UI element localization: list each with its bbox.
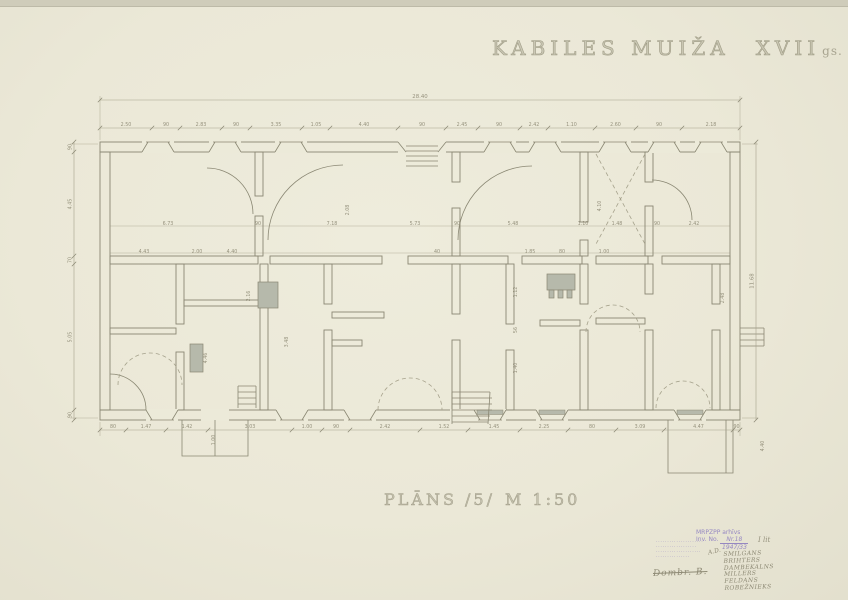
svg-text:1.48: 1.48 <box>612 221 623 227</box>
svg-text:5.05: 5.05 <box>68 332 74 343</box>
inventory-number: Nr.18 <box>720 536 748 544</box>
svg-text:2.00: 2.00 <box>192 249 203 255</box>
svg-text:3.35: 3.35 <box>271 122 282 128</box>
svg-text:1.52: 1.52 <box>439 424 450 430</box>
svg-text:1.10: 1.10 <box>566 122 577 128</box>
svg-text:3.48: 3.48 <box>284 337 290 348</box>
svg-text:2.42: 2.42 <box>380 424 391 430</box>
svg-text:2.60: 2.60 <box>610 122 621 128</box>
svg-text:90: 90 <box>68 144 74 150</box>
svg-text:7.18: 7.18 <box>327 221 338 227</box>
list-line: ··············· <box>656 554 704 559</box>
svg-text:1.42: 1.42 <box>182 424 193 430</box>
svg-text:1.12: 1.12 <box>513 287 519 298</box>
svg-text:3.03: 3.03 <box>245 424 256 430</box>
svg-text:4.45: 4.45 <box>68 199 74 210</box>
title-main: KABILES MUIŽA <box>492 36 730 60</box>
svg-text:4.40: 4.40 <box>359 122 370 128</box>
drawing-sheet: 28.402.50902.83903.351.054.40902.45902.4… <box>0 0 848 600</box>
svg-text:1.45: 1.45 <box>489 424 500 430</box>
svg-text:1.85: 1.85 <box>525 249 536 255</box>
svg-text:56: 56 <box>513 327 519 333</box>
svg-text:2.45: 2.45 <box>457 122 468 128</box>
svg-text:1.10: 1.10 <box>578 221 589 227</box>
svg-text:2.42: 2.42 <box>689 221 700 227</box>
floor-plan-drawing: 28.402.50902.83903.351.054.40902.45902.4… <box>0 0 848 600</box>
plan-scale: M 1:50 <box>505 490 580 509</box>
svg-text:2.48: 2.48 <box>720 293 726 304</box>
svg-text:2.50: 2.50 <box>121 122 132 128</box>
stairs-doors-group <box>110 142 764 473</box>
institution-stamp: ········································… <box>656 539 704 559</box>
svg-text:5.73: 5.73 <box>410 221 421 227</box>
svg-text:4.40: 4.40 <box>760 441 766 452</box>
svg-text:90: 90 <box>733 424 739 430</box>
svg-text:1.05: 1.05 <box>311 122 322 128</box>
svg-text:90: 90 <box>333 424 339 430</box>
svg-text:1.47: 1.47 <box>141 424 152 430</box>
svg-text:90: 90 <box>233 122 239 128</box>
svg-text:90: 90 <box>496 122 502 128</box>
svg-text:2.42: 2.42 <box>529 122 540 128</box>
svg-text:2.25: 2.25 <box>539 424 550 430</box>
svg-text:2.18: 2.18 <box>706 122 717 128</box>
svg-text:90: 90 <box>454 221 460 227</box>
title-century: XVII <box>756 36 820 60</box>
svg-text:80: 80 <box>110 424 116 430</box>
plan-caption: PLĀNS /5/M 1:50 <box>384 490 580 509</box>
svg-text:6.73: 6.73 <box>163 221 174 227</box>
title-suffix: gs. <box>822 44 843 58</box>
archive-stamp-name: MRPZPP arhīvs <box>696 529 816 536</box>
svg-text:4.43: 4.43 <box>139 249 150 255</box>
svg-text:70: 70 <box>68 257 74 263</box>
svg-text:90: 90 <box>656 122 662 128</box>
svg-text:90: 90 <box>163 122 169 128</box>
svg-text:28.40: 28.40 <box>412 94 428 100</box>
svg-text:3.09: 3.09 <box>635 424 646 430</box>
walls-group <box>100 142 740 420</box>
svg-text:2.83: 2.83 <box>196 122 207 128</box>
pencil-signature: Dombr. B. <box>653 567 708 579</box>
svg-text:2.08: 2.08 <box>345 205 351 216</box>
svg-text:1.40: 1.40 <box>513 363 519 374</box>
svg-text:1.00: 1.00 <box>211 435 217 446</box>
svg-text:4.47: 4.47 <box>693 424 704 430</box>
surveyor-names-list: SmilgansBrihtersDambekalnsMillersFeldans… <box>723 550 774 593</box>
drawing-title: KABILES MUIŽAXVIIgs. <box>492 36 822 60</box>
svg-text:5.48: 5.48 <box>508 221 519 227</box>
svg-text:90: 90 <box>419 122 425 128</box>
svg-text:2.16: 2.16 <box>246 291 252 302</box>
svg-text:4.40: 4.40 <box>227 249 238 255</box>
svg-text:1.00: 1.00 <box>302 424 313 430</box>
svg-text:1.00: 1.00 <box>599 249 610 255</box>
svg-text:4.46: 4.46 <box>203 353 209 364</box>
windows-group <box>142 141 727 422</box>
svg-text:90: 90 <box>68 412 74 418</box>
svg-text:90: 90 <box>654 221 660 227</box>
plan-caption-text: PLĀNS /5/ <box>384 490 495 509</box>
svg-text:4.10: 4.10 <box>597 201 603 212</box>
svg-text:80: 80 <box>589 424 595 430</box>
svg-text:80: 80 <box>559 249 565 255</box>
inventory-note: I lit <box>758 537 770 544</box>
svg-text:40: 40 <box>434 249 440 255</box>
svg-text:11.68: 11.68 <box>750 273 756 289</box>
svg-text:90: 90 <box>255 221 261 227</box>
